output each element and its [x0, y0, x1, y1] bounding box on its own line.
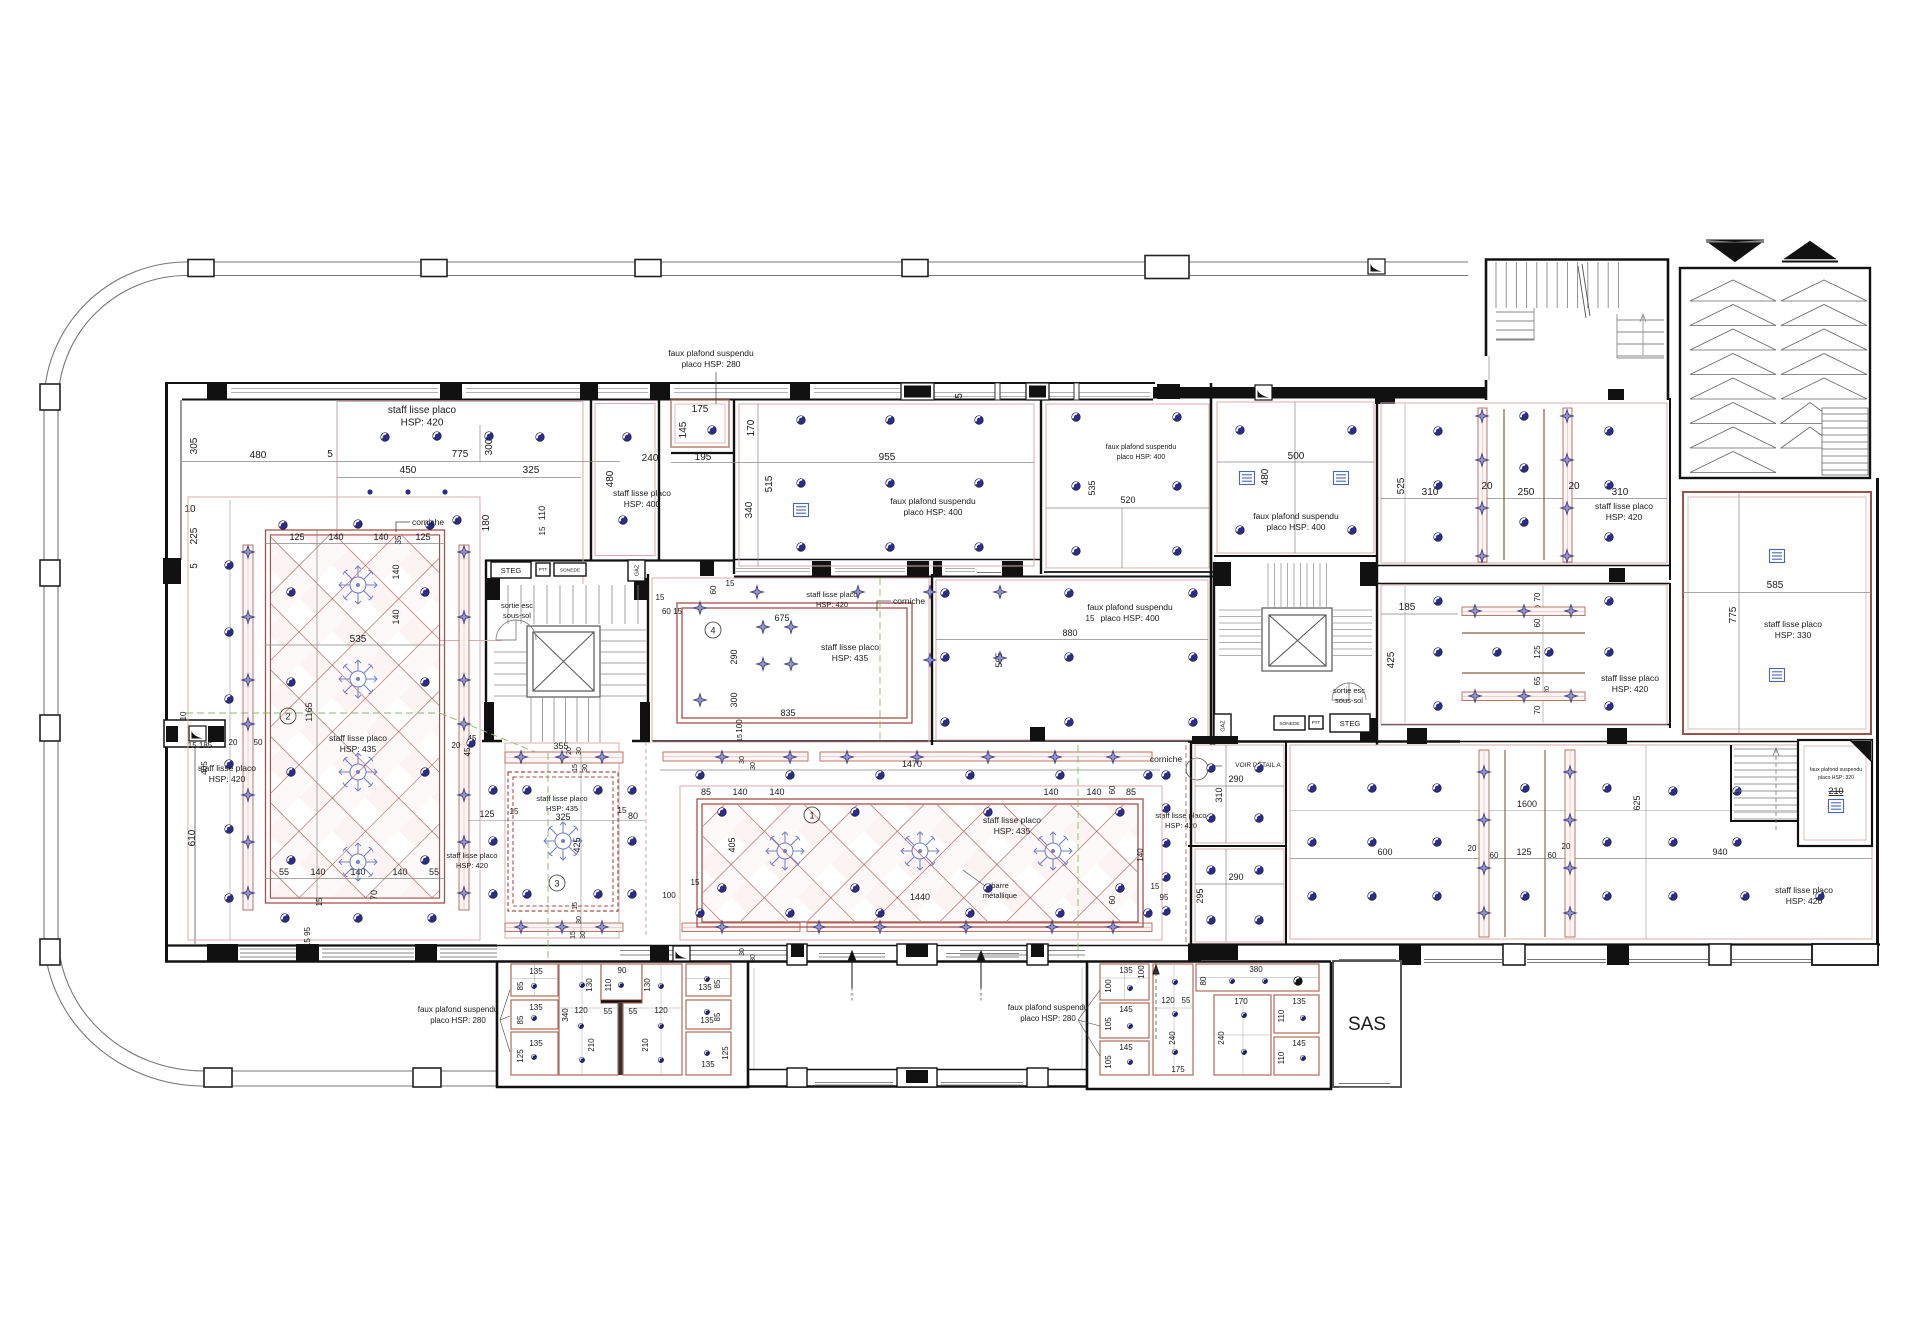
svg-text:staff lisse placo: staff lisse placo	[1595, 501, 1653, 511]
svg-text:290: 290	[1228, 872, 1243, 882]
svg-text:20: 20	[1481, 481, 1493, 492]
svg-text:staff lisse placo: staff lisse placo	[983, 815, 1041, 825]
svg-text:55: 55	[604, 1007, 613, 1016]
svg-text:290: 290	[729, 649, 739, 664]
svg-text:140: 140	[328, 532, 343, 542]
svg-text:placo HSP: 320: placo HSP: 320	[1818, 775, 1854, 781]
svg-text:140: 140	[392, 867, 407, 877]
svg-text:305: 305	[189, 437, 200, 454]
svg-text:60: 60	[709, 585, 718, 594]
svg-text:HSP: 420: HSP: 420	[816, 600, 848, 609]
svg-text:125: 125	[1516, 847, 1531, 857]
svg-text:140: 140	[769, 787, 784, 797]
svg-text:HSP: 420: HSP: 420	[1612, 684, 1649, 694]
svg-text:140: 140	[310, 867, 325, 877]
svg-text:210: 210	[641, 1038, 650, 1052]
svg-text:HSP: 420: HSP: 420	[209, 774, 246, 784]
svg-text:70: 70	[369, 890, 379, 900]
svg-text:SONEDE: SONEDE	[1279, 721, 1299, 727]
svg-text:130: 130	[585, 978, 594, 992]
svg-text:145: 145	[1292, 1039, 1306, 1048]
svg-text:1165: 1165	[304, 702, 314, 721]
svg-text:staff lisse placo: staff lisse placo	[1601, 673, 1659, 683]
svg-text:staff lisse placo: staff lisse placo	[1155, 811, 1206, 820]
svg-text:15: 15	[1086, 614, 1095, 623]
svg-text:120: 120	[654, 1006, 668, 1015]
svg-text:70: 70	[1533, 705, 1542, 714]
svg-text:15: 15	[572, 902, 579, 910]
svg-text:20: 20	[1468, 844, 1477, 853]
svg-text:faux plafond suspendu: faux plafond suspendu	[890, 496, 976, 506]
svg-text:140: 140	[391, 564, 401, 579]
svg-text:135: 135	[529, 967, 543, 976]
svg-text:145: 145	[678, 421, 689, 438]
svg-text:95: 95	[1160, 893, 1169, 902]
svg-text:15: 15	[315, 897, 324, 906]
svg-text:340: 340	[744, 501, 755, 518]
svg-text:295: 295	[1195, 888, 1205, 903]
svg-text:30: 30	[582, 764, 589, 772]
svg-text:130: 130	[643, 978, 652, 992]
svg-text:GAZ: GAZ	[634, 564, 640, 576]
svg-text:85: 85	[701, 787, 711, 797]
svg-text:placo HSP: 280: placo HSP: 280	[430, 1016, 486, 1025]
svg-text:625: 625	[1632, 795, 1642, 810]
svg-text:125: 125	[721, 1046, 730, 1060]
svg-text:HSP: 330: HSP: 330	[1775, 630, 1812, 640]
svg-text:faux plafond suspendu: faux plafond suspendu	[1253, 511, 1339, 521]
svg-text:staff lisse placo: staff lisse placo	[821, 642, 879, 652]
svg-text:940: 940	[1712, 847, 1727, 857]
svg-text:100: 100	[662, 891, 676, 900]
svg-text:HSP: 420: HSP: 420	[401, 418, 444, 429]
svg-text:180: 180	[481, 514, 492, 531]
svg-text:125: 125	[289, 532, 304, 542]
svg-text:5: 5	[189, 563, 200, 569]
svg-text:15: 15	[618, 806, 627, 815]
svg-text:425: 425	[572, 837, 582, 852]
svg-text:85: 85	[1126, 787, 1136, 797]
svg-text:380: 380	[1249, 965, 1263, 974]
svg-text:55: 55	[279, 867, 289, 877]
svg-text:15: 15	[572, 764, 579, 772]
svg-text:175: 175	[692, 404, 709, 415]
svg-text:110: 110	[604, 978, 613, 991]
svg-text:faux plafond suspendu: faux plafond suspendu	[1810, 767, 1862, 773]
svg-text:sous-sol: sous-sol	[1335, 696, 1363, 705]
svg-text:135: 135	[529, 1003, 543, 1012]
svg-text:staff lisse placo: staff lisse placo	[388, 405, 457, 416]
svg-text:135: 135	[1119, 966, 1133, 975]
svg-text:20: 20	[229, 738, 238, 747]
svg-text:135: 135	[698, 983, 712, 992]
svg-text:80: 80	[1199, 976, 1208, 985]
svg-text:SAS: SAS	[1348, 1014, 1386, 1035]
svg-text:240: 240	[642, 453, 659, 464]
svg-text:staff lisse placo: staff lisse placo	[613, 488, 671, 498]
svg-text:85: 85	[713, 1012, 722, 1021]
svg-text:175: 175	[1171, 1065, 1185, 1074]
svg-text:10: 10	[179, 711, 188, 720]
svg-text:faux plafond suspendu: faux plafond suspendu	[418, 1005, 499, 1014]
svg-text:535: 535	[1087, 480, 1097, 495]
svg-text:100: 100	[735, 719, 744, 733]
svg-text:15: 15	[691, 878, 700, 887]
svg-text:140: 140	[1136, 848, 1145, 862]
svg-text:15: 15	[1151, 882, 1160, 891]
svg-text:145: 145	[1119, 1005, 1133, 1014]
svg-text:HSP: 435: HSP: 435	[994, 826, 1031, 836]
svg-text:placo HSP: 400: placo HSP: 400	[1117, 454, 1166, 461]
svg-text:210: 210	[587, 1038, 596, 1052]
svg-text:520: 520	[1120, 495, 1135, 505]
svg-text:225: 225	[189, 527, 200, 544]
svg-text:480: 480	[605, 470, 616, 487]
svg-text:85: 85	[713, 979, 722, 988]
svg-text:210: 210	[1828, 786, 1843, 796]
svg-text:corniche: corniche	[1150, 754, 1182, 764]
svg-text:60: 60	[1533, 618, 1542, 627]
svg-text:80: 80	[628, 811, 638, 821]
svg-text:110: 110	[1277, 1051, 1286, 1064]
svg-text:775: 775	[452, 449, 469, 460]
svg-text:corniche: corniche	[412, 517, 444, 527]
svg-text:staff lisse placo: staff lisse placo	[1764, 619, 1822, 629]
svg-text:125: 125	[479, 809, 494, 819]
svg-text:170: 170	[1234, 997, 1248, 1006]
svg-text:325: 325	[523, 465, 540, 476]
svg-text:STEG: STEG	[501, 566, 522, 575]
svg-text:10: 10	[184, 504, 196, 515]
svg-text:♡: ♡	[850, 993, 855, 999]
svg-text:faux plafond suspendu: faux plafond suspendu	[1106, 444, 1177, 451]
svg-text:300: 300	[484, 438, 495, 455]
svg-text:20: 20	[1568, 481, 1580, 492]
svg-text:5: 5	[327, 449, 333, 460]
svg-text:65: 65	[1533, 676, 1542, 685]
svg-text:60 15: 60 15	[662, 607, 683, 616]
svg-text:HSP: 420: HSP: 420	[456, 861, 488, 870]
svg-text:1600: 1600	[1517, 799, 1537, 809]
svg-text:30: 30	[739, 756, 746, 764]
svg-text:sortie esc: sortie esc	[501, 601, 533, 610]
svg-text:PTT: PTT	[1312, 720, 1321, 725]
svg-text:45: 45	[463, 747, 472, 756]
svg-text:placo HSP: 400: placo HSP: 400	[1100, 613, 1159, 623]
svg-text:105: 105	[1104, 1017, 1113, 1031]
svg-text:55: 55	[629, 1007, 638, 1016]
svg-text:195: 195	[695, 452, 712, 463]
svg-text:20: 20	[1562, 842, 1571, 851]
svg-text:15: 15	[726, 579, 735, 588]
svg-text:100: 100	[1104, 979, 1113, 993]
svg-text:105: 105	[1104, 1055, 1113, 1069]
svg-text:SONEDE: SONEDE	[560, 567, 580, 573]
svg-text:♡: ♡	[979, 993, 984, 999]
svg-text:barre: barre	[991, 881, 1009, 890]
svg-text:15: 15	[656, 593, 665, 602]
svg-text:STEG: STEG	[1340, 719, 1361, 728]
svg-text:70: 70	[1533, 592, 1542, 601]
svg-text:15 95: 15 95	[303, 926, 312, 947]
svg-text:450: 450	[400, 465, 417, 476]
svg-text:425: 425	[1386, 651, 1397, 668]
svg-text:staff lisse placo: staff lisse placo	[536, 794, 587, 803]
svg-text:775: 775	[1728, 606, 1739, 623]
svg-text:55: 55	[429, 867, 439, 877]
svg-text:125: 125	[516, 1049, 525, 1063]
svg-text:30: 30	[576, 916, 583, 924]
svg-text:500: 500	[1288, 451, 1305, 462]
svg-text:HSP: 435: HSP: 435	[832, 653, 869, 663]
svg-text:faux plafond suspendu: faux plafond suspendu	[1008, 1003, 1089, 1012]
svg-text:faux plafond suspendu: faux plafond suspendu	[1087, 602, 1173, 612]
svg-text:staff lisse placo: staff lisse placo	[806, 590, 857, 599]
svg-text:125: 125	[415, 532, 430, 542]
svg-text:145: 145	[1119, 1043, 1133, 1052]
svg-text:610: 610	[187, 829, 198, 846]
svg-text:staff lisse placo: staff lisse placo	[198, 763, 256, 773]
svg-text:60: 60	[1490, 851, 1499, 860]
svg-text:675: 675	[774, 613, 789, 623]
svg-text:170: 170	[746, 419, 757, 436]
svg-text:60: 60	[1548, 851, 1557, 860]
svg-text:120: 120	[574, 1006, 588, 1015]
svg-text:140: 140	[732, 787, 747, 797]
svg-text:60: 60	[1108, 785, 1117, 794]
svg-text:515: 515	[764, 475, 775, 492]
svg-text:525: 525	[1396, 477, 1407, 494]
svg-text:85: 85	[516, 981, 525, 990]
svg-text:140: 140	[1086, 787, 1101, 797]
svg-text:140: 140	[391, 609, 401, 624]
svg-text:240: 240	[1168, 1031, 1177, 1045]
svg-text:300: 300	[729, 692, 739, 707]
svg-text:sous-sol: sous-sol	[503, 611, 531, 620]
svg-text:30: 30	[739, 948, 746, 956]
svg-text:405: 405	[727, 837, 737, 852]
svg-text:1440: 1440	[910, 892, 930, 902]
svg-text:240: 240	[1217, 1031, 1226, 1045]
svg-text:310: 310	[1214, 787, 1224, 802]
svg-text:30: 30	[576, 747, 583, 755]
svg-text:4: 4	[710, 626, 715, 636]
svg-text:3: 3	[554, 879, 559, 889]
svg-text:140: 140	[373, 532, 388, 542]
svg-text:20: 20	[452, 741, 461, 750]
svg-text:placo HSP: 280: placo HSP: 280	[681, 359, 740, 369]
svg-text:1470: 1470	[902, 759, 922, 769]
svg-text:110: 110	[1277, 1009, 1286, 1022]
svg-text:faux plafond suspendu: faux plafond suspendu	[668, 348, 754, 358]
svg-text:50: 50	[254, 738, 263, 747]
svg-text:HSP: 420: HSP: 420	[1606, 512, 1643, 522]
svg-text:110: 110	[537, 506, 547, 520]
svg-text:staff lisse placo: staff lisse placo	[329, 733, 387, 743]
svg-text:30: 30	[750, 954, 757, 962]
svg-text:HSP: 400: HSP: 400	[624, 499, 661, 509]
svg-text:PTT: PTT	[539, 567, 548, 572]
svg-text:135: 135	[1292, 997, 1306, 1006]
svg-text:30: 30	[580, 931, 587, 939]
svg-text:35: 35	[394, 535, 403, 544]
svg-text:60: 60	[1108, 895, 1117, 904]
svg-text:GAZ: GAZ	[1220, 720, 1226, 732]
svg-text:600: 600	[1377, 847, 1392, 857]
svg-text:15: 15	[737, 734, 744, 742]
svg-text:135: 135	[701, 1060, 715, 1069]
svg-text:20: 20	[566, 747, 573, 755]
svg-text:535: 535	[350, 634, 367, 645]
svg-text:placo HSP: 400: placo HSP: 400	[1266, 522, 1325, 532]
svg-text:placo HSP: 400: placo HSP: 400	[903, 507, 962, 517]
svg-text:15: 15	[570, 931, 577, 939]
svg-text:15: 15	[510, 807, 519, 816]
svg-text:250: 250	[1518, 487, 1535, 498]
svg-text:955: 955	[879, 452, 896, 463]
svg-text:55: 55	[1182, 996, 1191, 1005]
svg-text:1: 1	[809, 811, 814, 821]
svg-text:480: 480	[1260, 468, 1271, 485]
svg-text:140: 140	[1043, 787, 1058, 797]
svg-text:835: 835	[780, 708, 795, 718]
svg-text:HSP: 420: HSP: 420	[1165, 821, 1197, 830]
svg-text:340: 340	[561, 1008, 570, 1022]
svg-text:880: 880	[1062, 628, 1077, 638]
svg-text:corniche: corniche	[893, 596, 925, 606]
svg-text:585: 585	[1767, 580, 1784, 591]
svg-text:sortie esc: sortie esc	[1333, 686, 1365, 695]
svg-text:185: 185	[1399, 602, 1416, 613]
svg-text:85: 85	[516, 1015, 525, 1024]
svg-text:15: 15	[538, 526, 547, 535]
svg-text:290: 290	[1228, 774, 1243, 784]
svg-text:staff lisse placo: staff lisse placo	[1775, 885, 1833, 895]
svg-text:100: 100	[1137, 965, 1146, 979]
svg-text:310: 310	[1612, 487, 1629, 498]
svg-text:135: 135	[529, 1039, 543, 1048]
svg-text:5: 5	[954, 393, 965, 399]
svg-text:120: 120	[1161, 996, 1175, 1005]
svg-text:staff lisse placo: staff lisse placo	[446, 851, 497, 860]
svg-text:30: 30	[750, 762, 757, 770]
svg-text:90: 90	[618, 966, 627, 975]
svg-text:480: 480	[250, 450, 267, 461]
svg-text:125: 125	[1533, 645, 1542, 659]
svg-text:15 185: 15 185	[188, 741, 213, 750]
svg-text:placo HSP: 280: placo HSP: 280	[1020, 1014, 1076, 1023]
